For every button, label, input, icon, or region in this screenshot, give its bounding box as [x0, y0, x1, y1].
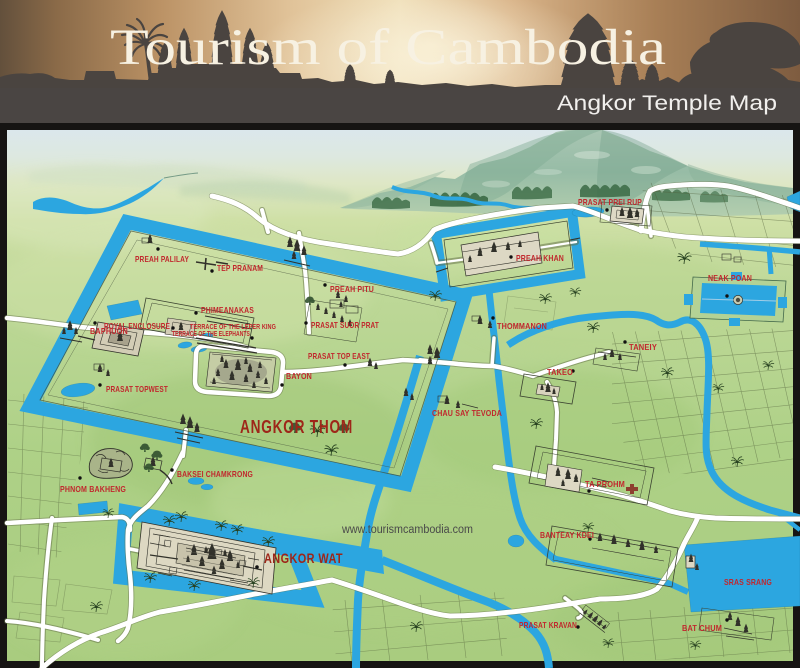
- svg-text:TERRACE OF THE ELEPHANTS: TERRACE OF THE ELEPHANTS: [172, 331, 250, 338]
- svg-text:SRAS SRANG: SRAS SRANG: [724, 577, 772, 587]
- svg-text:TEP PRANAM: TEP PRANAM: [217, 263, 263, 273]
- svg-text:PREAH PALILAY: PREAH PALILAY: [135, 254, 189, 264]
- svg-text:BAKSEI CHAMKRONG: BAKSEI CHAMKRONG: [177, 469, 253, 479]
- svg-text:BAYON: BAYON: [286, 371, 312, 381]
- svg-text:PHNOM BAKHENG: PHNOM BAKHENG: [60, 484, 126, 494]
- svg-text:TAKEO: TAKEO: [547, 367, 573, 377]
- svg-text:PHIMEANAKAS: PHIMEANAKAS: [201, 305, 254, 315]
- svg-text:Angkor Temple Map: Angkor Temple Map: [557, 91, 777, 115]
- svg-text:ANGKOR WAT: ANGKOR WAT: [264, 551, 343, 566]
- svg-text:PRASAT SUOR PRAT: PRASAT SUOR PRAT: [311, 320, 379, 330]
- svg-text:TERRACE OF THE LEPER KING: TERRACE OF THE LEPER KING: [190, 324, 276, 331]
- svg-text:www.tourismcambodia.com: www.tourismcambodia.com: [341, 524, 473, 536]
- svg-text:PRASAT TOPWEST: PRASAT TOPWEST: [106, 384, 168, 394]
- svg-text:PRASAT TOP EAST: PRASAT TOP EAST: [308, 351, 370, 361]
- svg-text:PRASAT PREI RUP: PRASAT PREI RUP: [578, 197, 642, 207]
- svg-text:TA PROHM: TA PROHM: [585, 479, 625, 489]
- svg-text:THOMMANON: THOMMANON: [497, 321, 547, 331]
- svg-text:BAPHUON: BAPHUON: [90, 326, 128, 336]
- svg-text:TANEIY: TANEIY: [629, 342, 657, 352]
- svg-text:PRASAT KRAVAN: PRASAT KRAVAN: [519, 620, 577, 630]
- svg-text:ANGKOR THOM: ANGKOR THOM: [240, 417, 353, 437]
- svg-text:PREAH KHAN: PREAH KHAN: [516, 253, 564, 263]
- svg-text:NEAK POAN: NEAK POAN: [708, 273, 752, 283]
- svg-text:CHAU SAY TEVODA: CHAU SAY TEVODA: [432, 408, 502, 418]
- svg-text:BAT CHUM: BAT CHUM: [682, 623, 722, 633]
- svg-text:BANTEAY KDEI: BANTEAY KDEI: [540, 530, 594, 540]
- svg-text:PREAH PITU: PREAH PITU: [330, 284, 374, 294]
- svg-text:Tourism of Cambodia: Tourism of Cambodia: [110, 20, 666, 76]
